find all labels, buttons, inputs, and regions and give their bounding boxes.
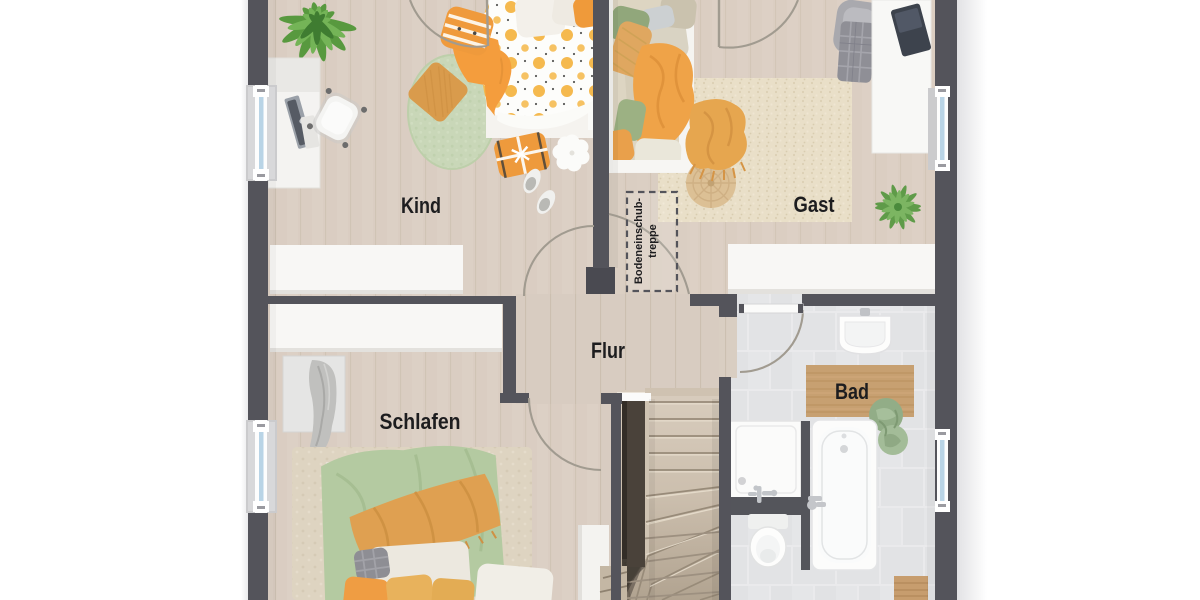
svg-text:Bad: Bad (835, 379, 869, 404)
svg-text:Bodeneinschub-: Bodeneinschub- (633, 198, 645, 285)
svg-text:treppe: treppe (647, 224, 659, 258)
svg-text:Flur: Flur (591, 338, 625, 363)
svg-text:Schlafen: Schlafen (380, 409, 461, 434)
svg-text:Kind: Kind (401, 193, 441, 218)
svg-text:Gast: Gast (794, 192, 836, 217)
